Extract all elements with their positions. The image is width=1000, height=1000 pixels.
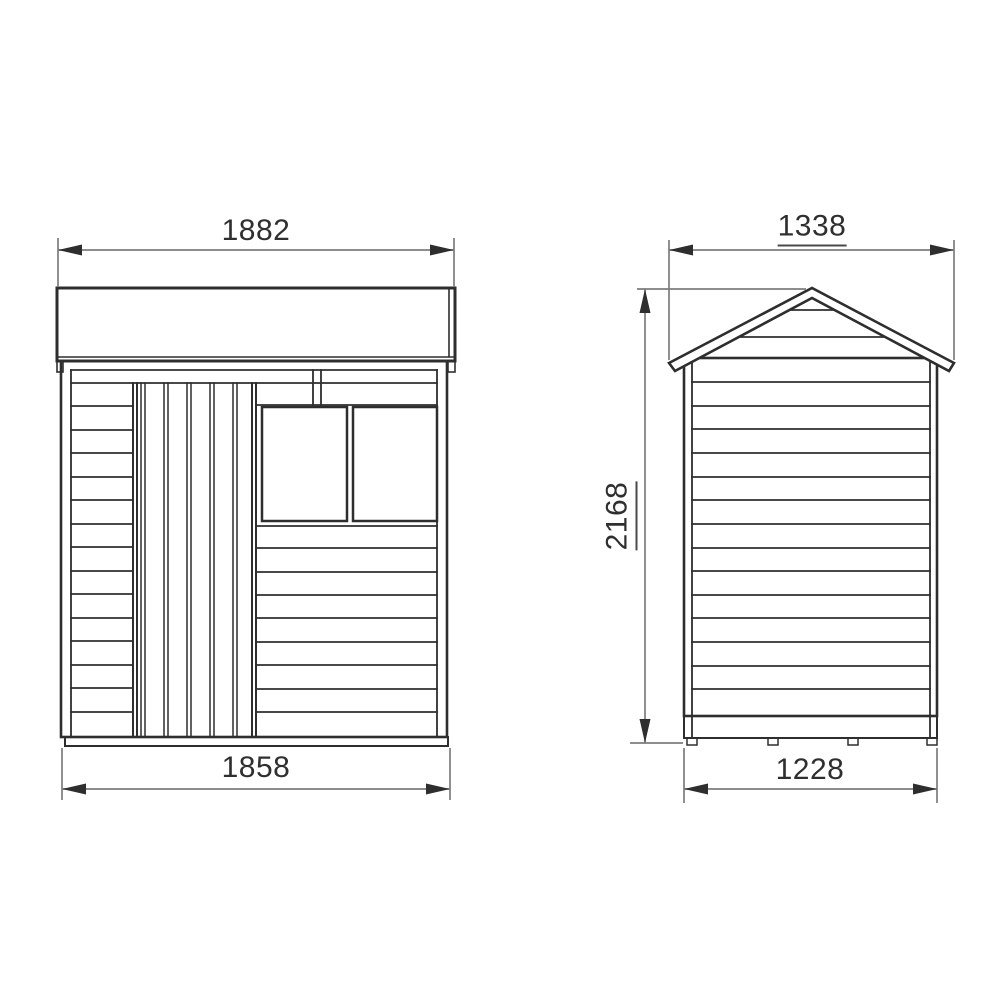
front-floor-base bbox=[65, 737, 448, 746]
front-elevation bbox=[57, 288, 455, 746]
side-elevation bbox=[669, 288, 954, 745]
side-top-width-dimension: 1338 bbox=[778, 212, 847, 247]
extension-lines bbox=[58, 238, 954, 803]
front-window-right-pane bbox=[353, 407, 437, 521]
side-bearer-foot bbox=[848, 738, 858, 745]
side-bearer-foot bbox=[768, 738, 778, 745]
front-right-cladding-lines bbox=[256, 548, 437, 712]
front-top-width-dimension: 1882 bbox=[222, 216, 291, 246]
technical-drawing-svg bbox=[0, 0, 1000, 1000]
front-header-band bbox=[71, 370, 437, 383]
front-door-planks bbox=[141, 383, 237, 737]
side-floor-base bbox=[684, 716, 937, 738]
front-roof-right-end-cap bbox=[448, 361, 455, 372]
side-cladding-lines bbox=[692, 382, 930, 689]
dimension-lines bbox=[58, 238, 954, 803]
front-left-cladding-lines bbox=[71, 406, 133, 712]
dimension-arrows bbox=[58, 245, 954, 795]
front-roof-fascia-detail bbox=[57, 290, 455, 357]
front-bottom-width-dimension: 1858 bbox=[222, 753, 291, 783]
front-wall-outline bbox=[61, 361, 447, 737]
front-roof-fascia bbox=[57, 288, 455, 361]
shed-dimension-diagram: 1882 1858 1338 2168 1228 bbox=[0, 0, 1000, 1000]
side-bearer-foot bbox=[687, 738, 697, 745]
front-corner-trims bbox=[71, 370, 437, 737]
front-window-left-pane bbox=[262, 407, 347, 521]
side-wall-outline bbox=[684, 358, 937, 716]
side-height-dimension: 2168 bbox=[603, 482, 638, 551]
front-header-mullion bbox=[313, 370, 321, 405]
side-bearer-foot bbox=[927, 738, 937, 745]
side-bottom-width-dimension: 1228 bbox=[776, 755, 845, 785]
